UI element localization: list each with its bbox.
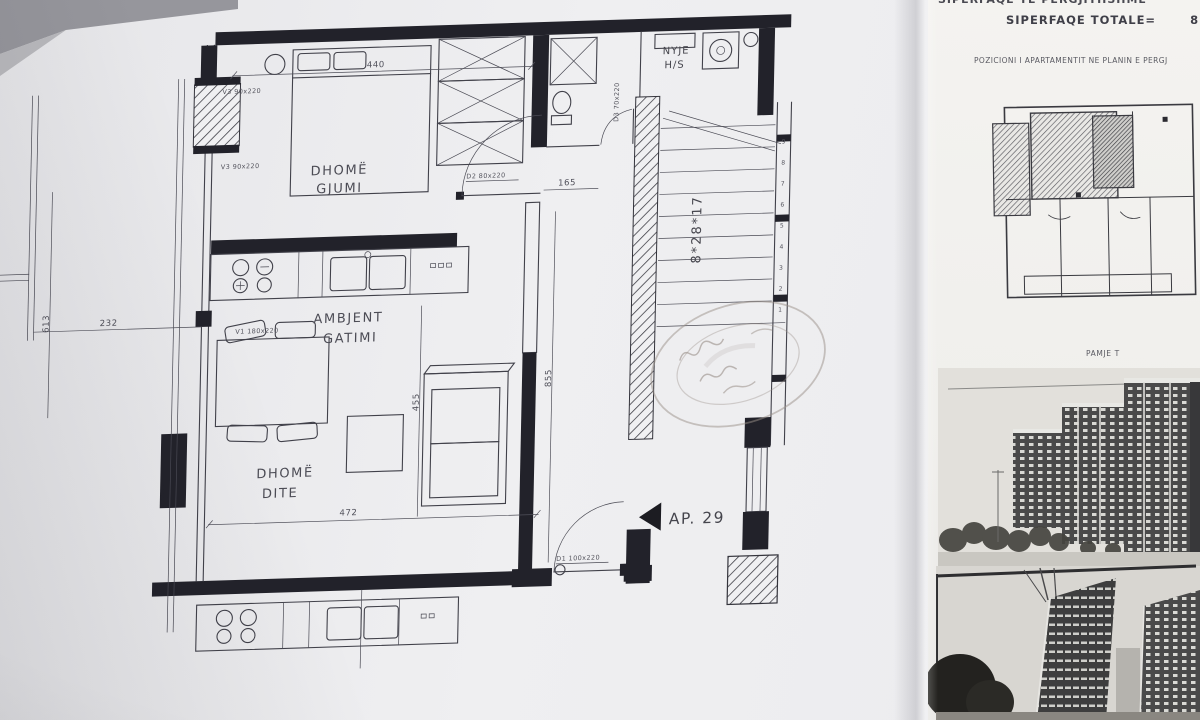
stair-step-number: 5 bbox=[780, 223, 784, 230]
stair-step-number: 8 bbox=[781, 159, 785, 166]
dim-door-offset: 165 bbox=[558, 178, 576, 189]
scanned-floorplan-photo: 1 2 3 4 5 6 7 8 9 8*28*17 bbox=[0, 0, 1200, 720]
boiler bbox=[744, 32, 758, 46]
window-label-v1: V1 180x220 bbox=[235, 326, 278, 335]
stair-step-number: 4 bbox=[779, 244, 783, 251]
bedroom-label: DHOMË bbox=[310, 162, 368, 180]
stairs-note: 8*28*17 bbox=[689, 195, 705, 264]
stair-wall-hatched bbox=[629, 96, 660, 439]
door-label-d1: D1 100x220 bbox=[556, 553, 600, 562]
kitchen-counter bbox=[210, 246, 469, 300]
nightstand-lamp bbox=[265, 54, 285, 75]
stair-step-number: 3 bbox=[779, 265, 783, 272]
bath-label-2: H/S bbox=[664, 60, 684, 72]
stamp-seal bbox=[639, 282, 837, 446]
door-label-d2: D2 80x220 bbox=[466, 171, 505, 180]
key-plan bbox=[992, 104, 1195, 297]
apartment-pointer: AP. 29 bbox=[639, 501, 726, 532]
living-label: DHOMË bbox=[256, 464, 314, 482]
chair bbox=[277, 422, 318, 442]
dining-table bbox=[215, 318, 330, 444]
kitchen-label-2: GATIMI bbox=[323, 330, 378, 347]
apartment-arrow-icon bbox=[639, 503, 662, 532]
kitchen-label: AMBJENT bbox=[313, 310, 383, 327]
stair-step-number: 6 bbox=[780, 202, 784, 209]
window-label-v3-mid: V3 90x220 bbox=[221, 162, 260, 171]
view-caption: PAMJE T bbox=[1086, 349, 1120, 358]
bath-label: NYJE bbox=[663, 45, 690, 57]
dim-corridor: 855 bbox=[544, 369, 554, 387]
wardrobe bbox=[437, 37, 526, 166]
chair bbox=[275, 321, 315, 338]
sofa bbox=[421, 363, 514, 506]
stair-step-number: 9 bbox=[782, 138, 786, 145]
sink-bath bbox=[551, 115, 571, 125]
dim-living-width: 472 bbox=[339, 508, 357, 519]
door-label-d3: D3 70x220 bbox=[612, 82, 621, 122]
dim-bedroom-width: 440 bbox=[367, 60, 385, 71]
key-plan-core bbox=[1093, 115, 1134, 188]
washing-machine bbox=[702, 32, 739, 69]
stair-step-number: 7 bbox=[781, 181, 785, 188]
stair-step-number: 1 bbox=[778, 307, 782, 314]
apartment-number: AP. 29 bbox=[669, 509, 725, 529]
bedroom-label-2: GJUMI bbox=[316, 181, 363, 197]
dim-sofa-line: 455 bbox=[411, 393, 421, 411]
bathroom bbox=[547, 36, 635, 147]
stove-burners bbox=[232, 259, 273, 293]
low-building bbox=[1116, 648, 1140, 720]
door-d1-entry bbox=[554, 501, 632, 577]
right-sheet-svg bbox=[928, 0, 1200, 720]
door-d2 bbox=[456, 115, 542, 200]
total-area-line: SIPERFAQE TOTALE=82.4 bbox=[1006, 13, 1200, 27]
toilet bbox=[553, 91, 571, 114]
dim-balcony-width: 232 bbox=[100, 319, 118, 330]
coffee-table bbox=[346, 415, 403, 473]
total-area-label: SIPERFAQE TOTALE= bbox=[1006, 13, 1156, 27]
window-label-v3-top: V3 90x220 bbox=[222, 87, 261, 96]
dim-balcony-height: 613 bbox=[42, 315, 52, 333]
window-wall bbox=[0, 45, 241, 638]
tower-right bbox=[1140, 590, 1200, 720]
kitchen-counter-neighbour bbox=[195, 587, 459, 673]
kitchen-sink bbox=[330, 250, 406, 290]
position-caption: POZICIONI I APARTAMENTIT NE PLANIN E PER… bbox=[974, 56, 1200, 65]
total-area-value: 82.4 bbox=[1190, 13, 1200, 27]
floor-plan-svg: 1 2 3 4 5 6 7 8 9 8*28*17 bbox=[0, 0, 940, 720]
chair bbox=[227, 425, 268, 442]
key-plan-balcony bbox=[993, 123, 1031, 216]
wall-section-window bbox=[727, 417, 781, 605]
building-render-top bbox=[938, 368, 1200, 600]
stair-step-number: 2 bbox=[779, 286, 783, 293]
sheet-title-clipped: SIPERFAQE TE PERGJITHSHME bbox=[938, 0, 1147, 6]
living-label-2: DITE bbox=[262, 486, 299, 502]
building-render-bottom bbox=[928, 566, 1200, 720]
stairs: 1 2 3 4 5 6 7 8 9 8*28*17 bbox=[654, 102, 791, 448]
